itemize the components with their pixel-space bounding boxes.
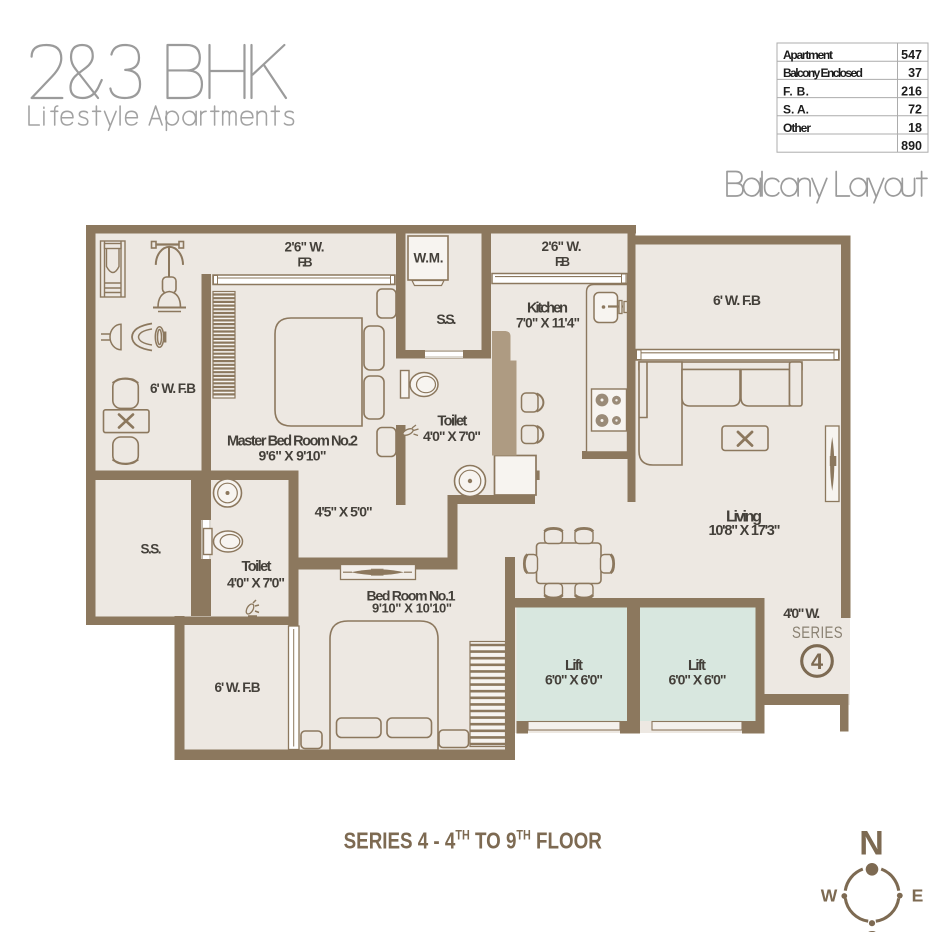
svg-text:Balcony Enclosed: Balcony Enclosed: [783, 66, 863, 80]
svg-text:N: N: [859, 825, 884, 863]
svg-text:Apartment: Apartment: [783, 48, 833, 62]
svg-text:6' W. F.B: 6' W. F.B: [713, 292, 761, 308]
svg-text:2'6" W.: 2'6" W.: [542, 239, 582, 254]
svg-text:6'0" X 6'0": 6'0" X 6'0": [545, 672, 603, 688]
svg-text:Other: Other: [783, 121, 811, 135]
svg-text:F. B.: F. B.: [783, 84, 809, 98]
svg-text:Kitchen: Kitchen: [527, 301, 568, 317]
svg-text:216: 216: [901, 84, 922, 98]
svg-text:F.B: F.B: [298, 256, 313, 270]
svg-text:6' W. F.B: 6' W. F.B: [215, 680, 261, 695]
svg-text:S.S.: S.S.: [436, 311, 456, 327]
svg-text:S. A.: S. A.: [783, 103, 809, 117]
svg-text:4: 4: [811, 649, 824, 674]
svg-text:6'0" X 6'0": 6'0" X 6'0": [669, 672, 727, 688]
svg-text:547: 547: [901, 48, 922, 62]
svg-text:W: W: [821, 886, 838, 906]
svg-text:E: E: [912, 886, 924, 906]
svg-text:6' W. F.B: 6' W. F.B: [150, 381, 196, 396]
svg-text:890: 890: [901, 139, 922, 153]
svg-text:18: 18: [908, 121, 922, 135]
svg-text:72: 72: [908, 103, 922, 117]
svg-text:4'0" W.: 4'0" W.: [783, 605, 820, 621]
svg-text:2'6" W.: 2'6" W.: [285, 240, 325, 255]
svg-text:S: S: [866, 927, 878, 932]
svg-text:F.B: F.B: [555, 255, 570, 269]
svg-text:Toilet: Toilet: [242, 559, 272, 575]
svg-text:4'0" X 7'0": 4'0" X 7'0": [227, 575, 285, 591]
svg-text:SERIES: SERIES: [792, 623, 843, 642]
svg-text:37: 37: [908, 66, 922, 80]
svg-text:9'6" X 9'10": 9'6" X 9'10": [259, 448, 327, 464]
svg-text:9'10" X 10'10": 9'10" X 10'10": [372, 601, 452, 616]
svg-text:4'0" X 7'0": 4'0" X 7'0": [423, 428, 481, 444]
svg-text:10'8" X 17'3": 10'8" X 17'3": [709, 523, 781, 539]
svg-text:7'0" X 11'4": 7'0" X 11'4": [516, 316, 580, 331]
svg-text:W.M.: W.M.: [414, 251, 444, 266]
svg-text:SERIES 4 - 4TH TO 9TH FLOOR: SERIES 4 - 4TH TO 9TH FLOOR: [344, 827, 602, 854]
svg-text:4'5" X 5'0": 4'5" X 5'0": [315, 504, 373, 520]
svg-text:S.S.: S.S.: [141, 542, 162, 557]
